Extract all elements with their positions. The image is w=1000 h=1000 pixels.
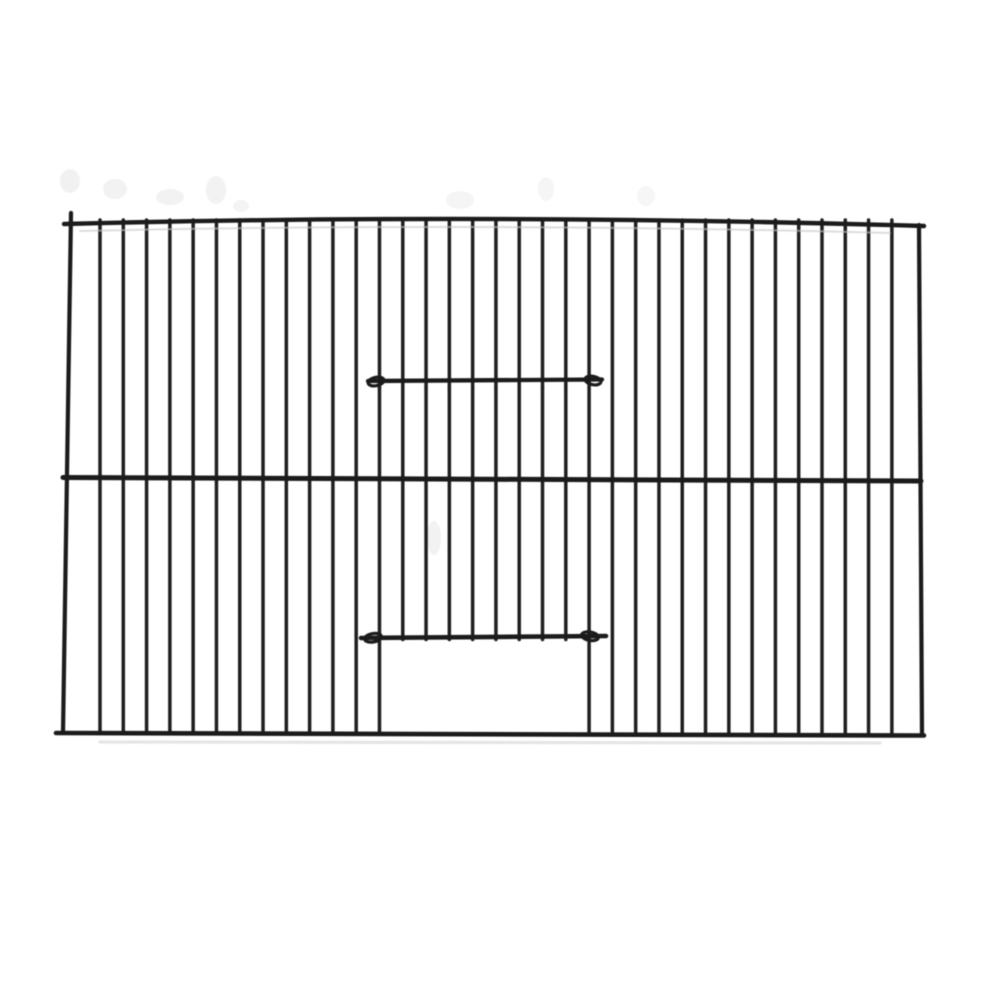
weld-joint (448, 384, 451, 393)
smudge-mark (60, 169, 80, 193)
weld-joint (424, 384, 427, 393)
weld-joint (541, 384, 544, 393)
weld-joint (378, 384, 381, 393)
top-rail-ghost (80, 227, 890, 233)
door-bottom-wire (361, 636, 606, 638)
frame-wires (56, 213, 924, 743)
door-top-guide-wire (368, 380, 602, 382)
cage-front-grid (0, 0, 1000, 1000)
sliding-door (361, 375, 606, 644)
smudge-mark (233, 200, 249, 212)
smudge-mark (156, 189, 184, 205)
smudge-mark (427, 521, 441, 555)
smudge-mark (103, 179, 127, 199)
product-photo (0, 0, 1000, 1000)
middle-rail (63, 478, 921, 482)
smudge-mark (538, 177, 554, 201)
door-opening (382, 641, 588, 731)
smudge-mark (206, 176, 226, 204)
left-frame-wire (63, 213, 71, 733)
weld-joint (564, 384, 567, 393)
weld-joint (494, 384, 497, 393)
weld-joint (401, 384, 404, 393)
bottom-rail-shadow (100, 742, 880, 743)
weld-joint (471, 384, 474, 393)
weld-joint (518, 384, 521, 393)
smudge-mark (637, 186, 655, 206)
smudge-mark (446, 191, 474, 209)
bottom-rail (56, 733, 924, 736)
weld-joint (587, 384, 590, 393)
